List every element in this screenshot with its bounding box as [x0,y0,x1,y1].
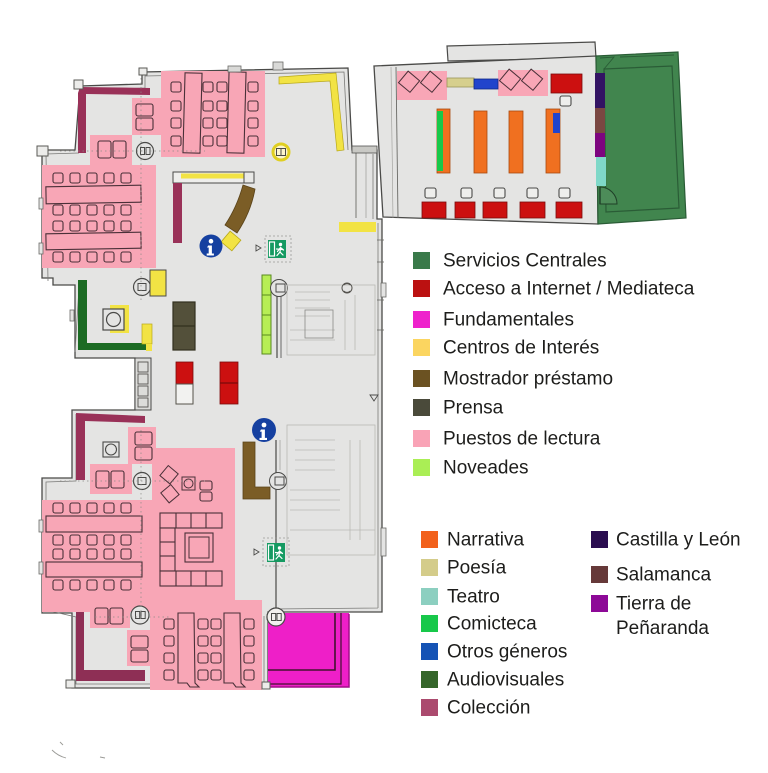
svg-text:Fundamentales: Fundamentales [443,310,574,331]
svg-text:Servicios Centrales: Servicios Centrales [443,251,607,272]
svg-text:Puestos de lectura: Puestos de lectura [443,429,601,450]
svg-text:Salamanca: Salamanca [616,565,711,586]
svg-text:Prensa: Prensa [443,398,504,419]
svg-text:Otros géneros: Otros géneros [447,642,567,663]
svg-text:Castilla y León: Castilla y León [616,530,741,551]
svg-text:Narrativa: Narrativa [447,530,525,551]
svg-text:Mostrador préstamo: Mostrador préstamo [443,369,613,390]
svg-text:Peñaranda: Peñaranda [616,618,709,639]
svg-text:Tierra de: Tierra de [616,594,691,615]
svg-text:Centros de Interés: Centros de Interés [443,338,599,359]
svg-text:Comicteca: Comicteca [447,614,537,635]
svg-text:Acceso a Internet / Mediateca: Acceso a Internet / Mediateca [443,279,695,300]
svg-text:Noveades: Noveades [443,458,529,479]
svg-text:Teatro: Teatro [447,587,500,608]
svg-text:Poesía: Poesía [447,558,507,579]
svg-text:Colección: Colección [447,698,530,719]
svg-text:Audiovisuales: Audiovisuales [447,670,564,691]
